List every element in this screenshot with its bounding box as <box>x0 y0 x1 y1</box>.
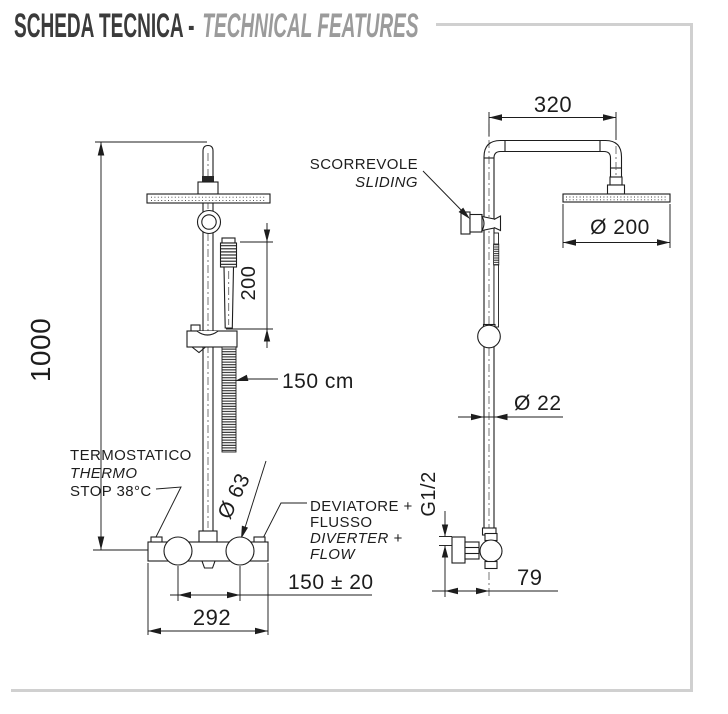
sliding-line-2: SLIDING <box>355 174 418 191</box>
arrowhead-up <box>98 142 105 156</box>
ball-joint <box>478 325 501 348</box>
sliding-line-1: SCORREVOLE <box>310 156 418 173</box>
bracket-clamp-wing <box>494 216 501 231</box>
dim-hand-shower-text: 200 <box>238 266 260 301</box>
valve-body-side <box>480 540 502 562</box>
dim-body-width-text: 292 <box>193 605 231 630</box>
arrowhead-left <box>563 239 576 245</box>
bracket-knob <box>191 325 200 331</box>
technical-sheet: SCHEDA TECNICA -TECHNICAL FEATURES <box>0 0 728 714</box>
arrowhead-down <box>98 537 105 551</box>
label-hose-length: 150 cm <box>235 370 354 393</box>
diverter-line-4: FLOW <box>310 546 356 563</box>
bracket-flange <box>470 215 482 233</box>
leader-line <box>243 461 266 534</box>
ball-joint-sphere <box>478 325 501 348</box>
leader-line <box>423 171 466 215</box>
hand-shower-head-side <box>494 244 499 265</box>
wall-plate <box>452 537 465 563</box>
valve-outlet <box>202 561 215 568</box>
dim-head-diameter-text: Ø 200 <box>590 216 650 239</box>
hand-shower-hose <box>222 347 236 452</box>
arrowhead-left <box>235 375 248 381</box>
dim-head-diameter: Ø 200 <box>563 204 670 248</box>
technical-drawing: 1000 <box>0 0 728 714</box>
sliding-ring-inner <box>202 215 216 229</box>
head-connector <box>198 182 218 194</box>
dim-body-width: 292 <box>148 563 268 635</box>
dim-wall-distance-text: 79 <box>517 565 542 590</box>
hand-shower-front <box>221 238 237 328</box>
hex-nut <box>465 542 479 559</box>
arrowhead-right <box>227 592 240 598</box>
label-sliding: SCORREVOLE SLIDING <box>310 156 470 219</box>
diverter-line-3: DIVERTER + <box>310 530 403 547</box>
valve-knob-left <box>164 537 192 565</box>
dim-inlet-distance-text: 150 ± 20 <box>288 571 374 594</box>
dim-column-diameter: Ø 22 <box>458 392 563 420</box>
arm-nut <box>610 177 622 185</box>
dim-inlet-distance: 150 ± 20 <box>170 566 374 601</box>
thermostatic-line-3: STOP 38°C <box>70 483 152 500</box>
leader-line <box>152 487 181 545</box>
pipe-nut <box>199 531 217 542</box>
arrowhead-right <box>657 239 670 245</box>
thermostatic-line-2: THERMO <box>70 465 137 482</box>
thermostatic-line-1: TERMOSTATICO <box>70 447 192 464</box>
label-thermostatic: TERMOSTATICO THERMO STOP 38°C <box>70 447 192 545</box>
arrowhead-right <box>603 114 616 120</box>
valve-knob-right <box>226 537 254 565</box>
dim-arm-reach-text: 320 <box>534 92 572 117</box>
thermostatic-valve-front <box>148 531 268 568</box>
arrowhead-right <box>471 414 484 420</box>
dim-wall-distance: 79 <box>432 565 558 594</box>
diverter-line-1: DEVIATORE + <box>310 498 413 515</box>
arrowhead-left <box>445 588 458 594</box>
arrowhead-down <box>442 525 448 537</box>
arrowhead-up <box>442 546 448 558</box>
arrowhead-right <box>255 628 268 634</box>
dim-connection-thread: G1/2 <box>418 471 452 597</box>
overhead-shower-side <box>563 194 670 202</box>
head-connector-side <box>608 185 625 194</box>
wall-valve-side <box>452 528 502 569</box>
arrowhead-left <box>489 114 502 120</box>
arrowhead-right <box>476 588 489 594</box>
shower-head-disc-side <box>563 194 670 202</box>
dim-total-height-text: 1000 <box>25 318 56 382</box>
arrowhead-up <box>264 329 270 342</box>
pipe-inner <box>494 152 611 529</box>
label-knob-diameter: Ø 63 <box>213 461 266 539</box>
arrowhead-left <box>148 628 161 634</box>
hand-shower-cap <box>222 238 235 243</box>
dim-hose-text: 150 cm <box>282 370 354 393</box>
dim-column-diameter-text: Ø 22 <box>514 392 562 415</box>
valve-bottom-cap <box>485 562 497 569</box>
diverter-line-2: FLUSSO <box>310 514 372 531</box>
arrowhead-down <box>264 230 270 243</box>
pipe-collar <box>202 176 214 182</box>
dim-connection-thread-text: G1/2 <box>418 471 440 516</box>
label-diverter: DEVIATORE + FLUSSO DIVERTER + FLOW <box>258 498 413 563</box>
arrowhead-left <box>495 414 508 420</box>
front-view: 1000 <box>25 142 413 635</box>
arrowhead-left <box>178 592 191 598</box>
hand-shower-head <box>221 243 237 267</box>
dim-arm-reach: 320 <box>489 92 616 140</box>
shower-head-disc <box>147 194 270 203</box>
hand-shower-side <box>494 233 499 327</box>
overhead-shower-front <box>147 194 270 234</box>
